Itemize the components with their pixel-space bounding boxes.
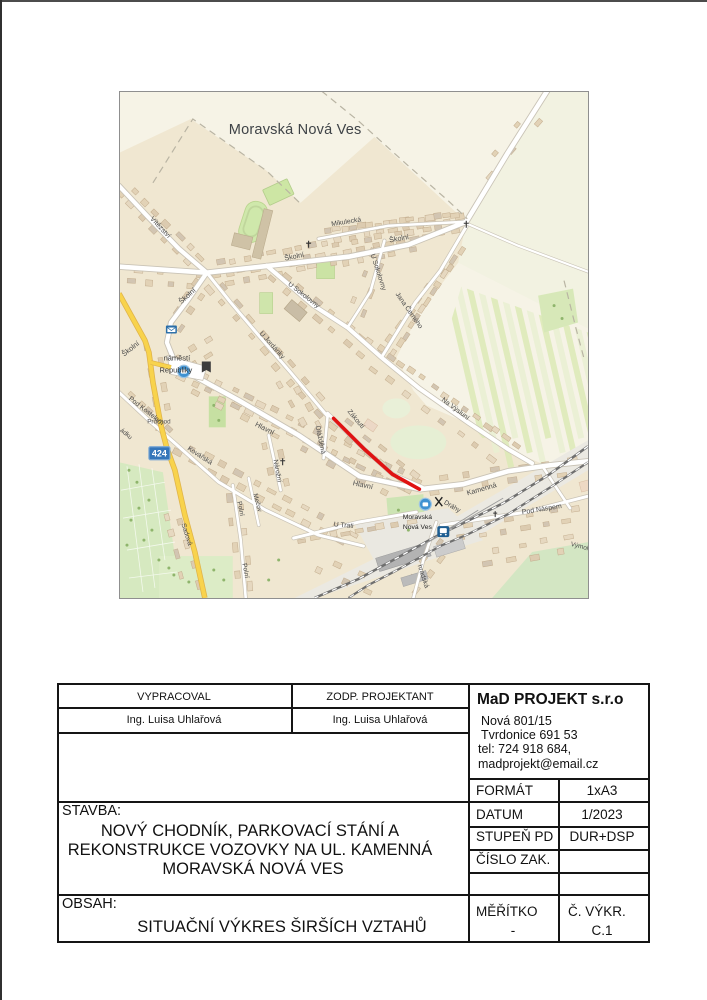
svg-text:Nová Ves: Nová Ves — [403, 524, 433, 531]
svg-text:Průchod: Průchod — [147, 417, 171, 425]
svg-text:Moravská: Moravská — [403, 514, 433, 521]
svg-text:Moravská Nová Ves: Moravská Nová Ves — [229, 122, 362, 138]
svg-text:424: 424 — [152, 449, 167, 459]
svg-text:náměstí: náměstí — [164, 353, 191, 362]
svg-text:Republiky: Republiky — [159, 365, 192, 374]
